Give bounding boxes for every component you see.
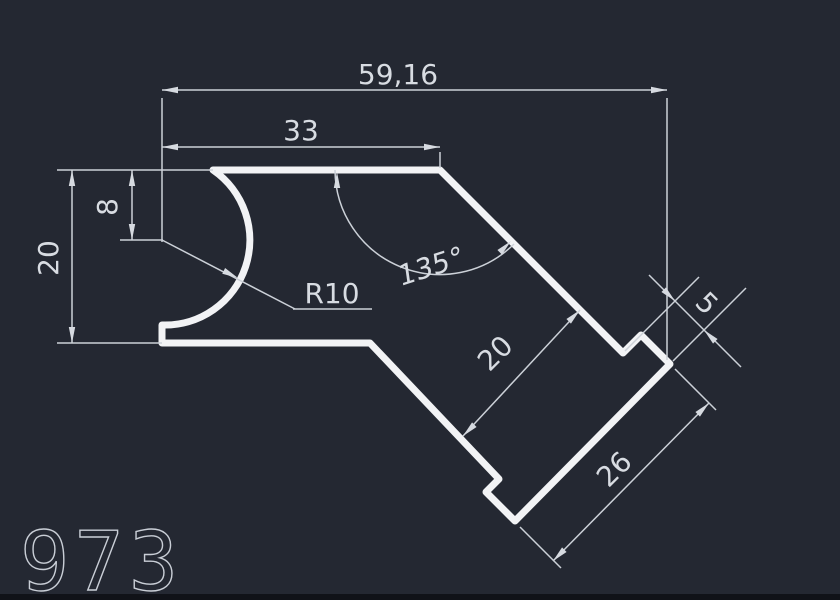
arrow-icon [461, 422, 477, 438]
dim-top-width: 33 [283, 114, 319, 147]
ext-line-cap-tip [520, 527, 561, 568]
arrow-icon [162, 87, 178, 93]
dim-cap-length: 26 [590, 445, 639, 494]
arrow-icon [661, 287, 677, 303]
dim-line-arm-width [463, 310, 580, 436]
arrow-icon [69, 170, 75, 186]
arrow-icon [695, 401, 711, 417]
arrow-icon [424, 144, 440, 150]
arrow-icon [129, 170, 135, 186]
dim-overall-height: 20 [32, 240, 65, 276]
dim-arc-offset: 8 [91, 198, 124, 216]
arrow-icon [69, 327, 75, 343]
dim-corner-angle: 135° [396, 240, 465, 294]
dim-line-cap [553, 403, 709, 561]
dim-total-width: 59,16 [358, 58, 438, 91]
bottom-edge-band [0, 594, 840, 600]
arrow-icon [651, 87, 667, 93]
cad-canvas[interactable]: 59,16 33 20 8 135° R10 20 5 26 973 [0, 0, 840, 600]
arrow-icon [162, 144, 178, 150]
arrow-icon [551, 547, 567, 563]
arrow-icon [702, 328, 718, 344]
dim-fillet-radius: R10 [304, 277, 359, 310]
arrow-icon [129, 224, 135, 240]
drawing-viewport: 59,16 33 20 8 135° R10 20 5 26 973 [0, 0, 840, 600]
arrow-icon [566, 308, 582, 324]
dim-arm-width: 20 [471, 329, 520, 378]
ext-line-cap-top [675, 369, 716, 410]
part-number-label: 973 [20, 515, 183, 600]
dim-step: 5 [689, 285, 725, 321]
dimension-texts: 59,16 33 20 8 135° R10 20 5 26 [32, 58, 725, 494]
